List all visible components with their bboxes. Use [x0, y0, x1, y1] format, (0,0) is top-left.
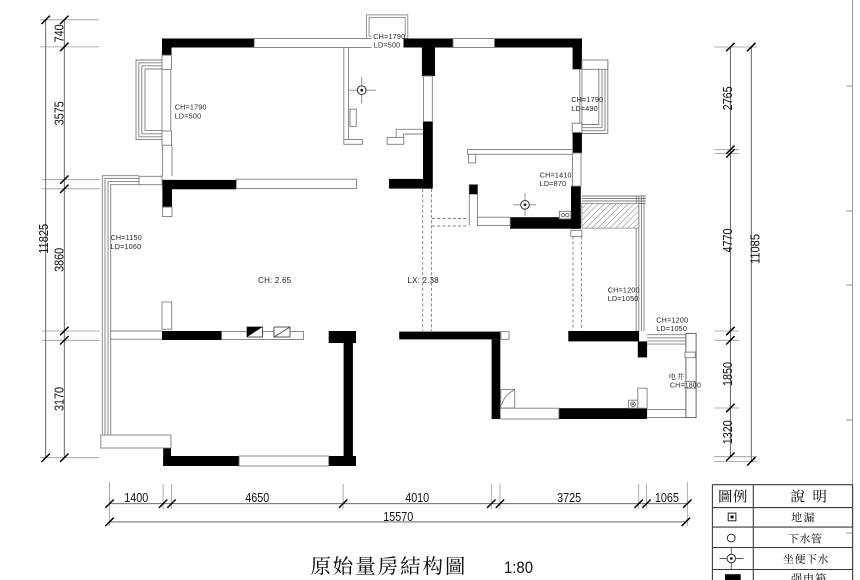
svg-text:11825: 11825: [36, 224, 51, 254]
svg-text:CH=1800: CH=1800: [670, 382, 701, 389]
svg-text:3860: 3860: [51, 248, 66, 272]
svg-text:CH=1200: CH=1200: [656, 315, 688, 324]
svg-text:4650: 4650: [245, 490, 269, 505]
svg-text:1:80: 1:80: [504, 559, 533, 577]
svg-text:LD=500: LD=500: [374, 40, 401, 49]
svg-text:LD=490: LD=490: [571, 104, 598, 113]
svg-text:3725: 3725: [557, 490, 581, 505]
svg-text:1065: 1065: [655, 490, 679, 505]
svg-text:CH=1150: CH=1150: [111, 233, 142, 242]
svg-text:3575: 3575: [51, 101, 66, 125]
svg-text:CH=1790: CH=1790: [571, 95, 603, 104]
svg-text:CH=1790: CH=1790: [175, 103, 207, 112]
svg-text:1850: 1850: [720, 362, 735, 386]
svg-text:1320: 1320: [720, 420, 735, 444]
svg-text:LD=1050: LD=1050: [656, 324, 687, 333]
svg-text:11085: 11085: [748, 234, 763, 264]
svg-text:LD=500: LD=500: [175, 111, 202, 120]
svg-text:LD=870: LD=870: [540, 179, 567, 188]
svg-text:CH=1200: CH=1200: [608, 285, 640, 294]
svg-text:3170: 3170: [51, 387, 66, 411]
svg-text:15570: 15570: [383, 509, 413, 524]
svg-text:4770: 4770: [720, 229, 735, 253]
svg-text:740: 740: [51, 24, 66, 42]
svg-text:CH=1410: CH=1410: [540, 170, 572, 179]
svg-text:LD=1060: LD=1060: [111, 242, 142, 251]
svg-text:LX: 2.38: LX: 2.38: [408, 276, 440, 285]
svg-text:4010: 4010: [405, 490, 429, 505]
svg-text:2765: 2765: [720, 86, 735, 110]
svg-text:CH: 2.65: CH: 2.65: [258, 276, 292, 285]
svg-text:1400: 1400: [124, 490, 148, 505]
svg-text:LD=1050: LD=1050: [608, 294, 639, 303]
